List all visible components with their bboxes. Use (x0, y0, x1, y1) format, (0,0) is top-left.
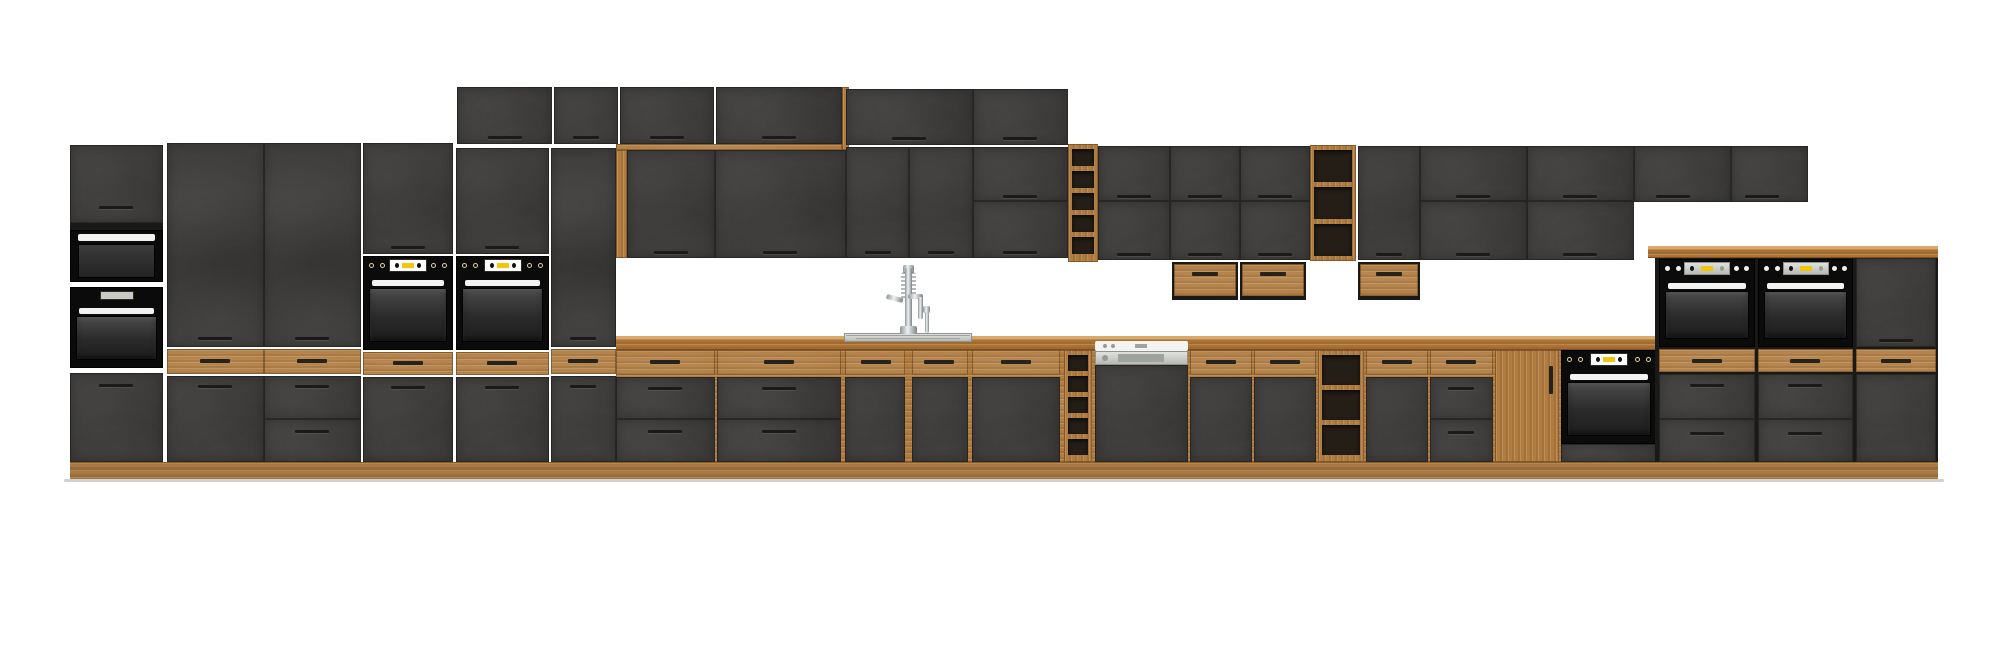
wall-b-top-door-1-handle (1117, 195, 1151, 198)
tall3-drawer-1-handle (295, 385, 329, 388)
tower-end-base-door (1856, 374, 1936, 462)
base2-drawer-1-handle (762, 387, 796, 390)
tower2-drawer-2 (1758, 419, 1853, 462)
tall5-oven-handle-bar (465, 280, 540, 286)
wall-sink-door-1 (627, 150, 715, 258)
tall6-door-handle (570, 337, 596, 340)
wall-open-shelf-1-slot-3 (1072, 193, 1094, 210)
tower1-oak-drawer-handle (1692, 359, 1722, 363)
tower-oven-2-knob-l1 (1764, 266, 1769, 271)
wall-open-shelf-2-slot-1 (1314, 150, 1352, 182)
tall5-oven-knob-r1 (527, 263, 532, 268)
tall1-bottom-door-handle (99, 384, 133, 387)
tall3-drawer-1 (264, 376, 361, 419)
tall5-oven-display-dot-2 (512, 263, 516, 268)
sink-bowl-line (856, 338, 960, 339)
tall2-base-door (167, 376, 264, 462)
wall-c-bottom-door-2-handle (1563, 253, 1597, 256)
wall-sink-door-2-handle (763, 251, 797, 254)
tall5-oven-knob-r2 (538, 263, 543, 268)
tower-oven-1-knob-l2 (1676, 266, 1681, 271)
wall-a-door-2-handle (928, 251, 954, 254)
tower1-drawer-1 (1659, 374, 1755, 419)
tall5-oven-knob-l2 (473, 263, 478, 268)
tower-oven-2-knob-l2 (1775, 266, 1780, 271)
dishwasher-button (1102, 355, 1108, 361)
tall3-drawer-2 (264, 419, 361, 462)
tower-oven-2-display-timer (1800, 266, 1812, 271)
tall4-oven-display-dot-1 (395, 263, 399, 268)
tall1-top-door (70, 145, 163, 223)
wall-a-door-3 (973, 147, 1068, 201)
base-wine-rack-slot-5 (1068, 439, 1088, 455)
tall5-oak-drawer-handle (487, 361, 517, 365)
base9-oak-drawer-handle (1382, 360, 1412, 364)
base-wine-rack-slot-1 (1068, 355, 1088, 371)
faucet-dispenser-stem (925, 312, 929, 333)
tall5-base-door-handle (485, 386, 519, 389)
tower-oven-1-glass (1665, 291, 1749, 339)
sink-base-door-1 (845, 377, 905, 462)
base-open-shelf-slot-3 (1322, 425, 1360, 455)
hanging-drawer-box-3-front (1360, 264, 1418, 296)
base1-drawer-2 (616, 419, 715, 462)
base7-door (1190, 377, 1252, 462)
tower1-drawer-2 (1659, 419, 1755, 462)
wall-b-bottom-door-2-handle (1188, 253, 1222, 256)
wall-c-top-door-2-handle (1563, 195, 1597, 198)
wall-b-bottom-door-3 (1240, 201, 1310, 260)
tower-oven-1-display-timer (1701, 266, 1713, 271)
tall6-base-door-handle (570, 385, 596, 388)
tall4-top-door (363, 143, 453, 254)
wall-d-door-1 (1634, 146, 1731, 202)
tower-end-top-door (1856, 258, 1936, 347)
wall-a-door-2 (909, 147, 973, 258)
oak-pantry-door-handle (1549, 366, 1553, 394)
tall6-base-door (551, 376, 616, 462)
tall1-oven-handle-bar (79, 308, 154, 314)
base1-drawer-1-handle (648, 387, 682, 390)
base-built-under-oven-glass (1567, 382, 1651, 436)
hanging-drawer-box-1-handle (1192, 272, 1218, 276)
tall5-oven-knob-l1 (462, 263, 467, 268)
tower2-drawer-1-handle (1788, 384, 1822, 387)
wall-open-shelf-2-slot-3 (1314, 224, 1352, 256)
tall4-oven-glass (369, 288, 447, 342)
wall-c-door-handle (1376, 253, 1402, 256)
tall2-base-door-handle (198, 385, 232, 388)
base-built-under-oven-knob-l1 (1567, 357, 1572, 362)
tall2-door-handle (198, 337, 232, 340)
sink-base-door-2 (912, 377, 968, 462)
base1-drawer-2-handle (648, 430, 682, 433)
tall1-frame-strip (70, 223, 163, 230)
dishwasher-top-mark-2 (1111, 344, 1115, 348)
wall-b-top-door-3-handle (1258, 195, 1292, 198)
tower-end-top-door-handle (1879, 339, 1913, 342)
wall-b-top-door-1 (1098, 146, 1170, 201)
wall-b-bottom-door-1 (1098, 201, 1170, 260)
wall-b-top-door-2 (1170, 146, 1240, 201)
hanging-drawer-box-2-front (1242, 264, 1304, 296)
wall-high-door-3-handle (650, 136, 684, 139)
base7-oak-drawer-handle (1206, 360, 1236, 364)
sink-base-door-3 (972, 377, 1060, 462)
tall1-microwave-glass (78, 244, 155, 278)
tower-oven-1-knob-r2 (1734, 266, 1739, 271)
wall-a-door-1 (846, 147, 909, 258)
hanging-drawer-box-1-front (1174, 264, 1236, 296)
hanging-drawer-box-2-handle (1260, 272, 1286, 276)
tall2-door (167, 143, 264, 347)
tall3-drawer-2-handle (295, 430, 329, 433)
base2-oak-drawer-handle (764, 360, 794, 364)
base8-door (1254, 377, 1316, 462)
wall-b-top-door-3 (1240, 146, 1310, 201)
tall3-door-handle (295, 337, 329, 340)
wall-a-door-4 (973, 201, 1068, 258)
base9-door (1366, 377, 1428, 462)
tall5-oven-display-dot-1 (490, 263, 494, 268)
wall-open-shelf-2-slot-2 (1314, 187, 1352, 219)
tall1-microwave-bar (78, 234, 155, 241)
base-oven-lower-panel (1561, 444, 1657, 462)
base-built-under-oven-handle-bar (1570, 374, 1648, 380)
base-built-under-oven-display-dot-2 (1618, 357, 1622, 362)
base-built-under-oven-knob-r1 (1635, 357, 1640, 362)
tower-oven-2-glass (1764, 291, 1847, 339)
wall-open-shelf-1-slot-4 (1072, 215, 1094, 232)
sink-base-oak-drawer-1-handle (861, 360, 891, 364)
wall-b-top-door-2-handle (1188, 195, 1222, 198)
tall6-door (551, 148, 616, 347)
wall-d-door-1-handle (1656, 195, 1690, 198)
wall-c-top-door-2 (1527, 146, 1634, 201)
base10-drawer-2-handle (1448, 431, 1474, 434)
hanging-drawer-box-3-handle (1376, 272, 1402, 276)
tall4-base-door (363, 377, 453, 462)
wall-sink-door-2 (715, 150, 846, 258)
tall6-oak-drawer-handle (568, 359, 598, 363)
base10-drawer-1-handle (1448, 387, 1474, 390)
base-open-shelf-slot-1 (1322, 355, 1360, 385)
base1-oak-drawer-handle (650, 360, 680, 364)
base10-drawer-2 (1430, 419, 1493, 462)
tower-worktop-cap (1648, 246, 1938, 258)
wall-c-bottom-door-1 (1420, 201, 1527, 260)
tower-oven-2-display-dot-1 (1789, 266, 1793, 271)
tall4-oven-display-timer (402, 263, 414, 268)
tower-oven-1-knob-r3 (1744, 266, 1749, 271)
tower1-drawer-1-handle (1690, 384, 1724, 387)
wall-b-bottom-door-2 (1170, 201, 1240, 260)
tall4-oven-display-dot-2 (417, 263, 421, 268)
tall4-oak-drawer-handle (393, 361, 423, 365)
base-wine-rack-slot-3 (1068, 397, 1088, 413)
base-built-under-oven-display-dot-1 (1596, 357, 1600, 362)
tower-oven-1-display-dot-2 (1720, 266, 1724, 271)
base-built-under-oven-display-timer (1603, 357, 1615, 362)
tower-oven-2-handle-bar (1767, 283, 1844, 289)
tall2-oak-drawer-handle (200, 359, 230, 363)
tower-oven-2-knob-r2 (1832, 266, 1837, 271)
base8-oak-drawer-handle (1270, 360, 1300, 364)
wall-a-door-1-handle (865, 251, 891, 254)
tower2-drawer-2-handle (1788, 432, 1822, 435)
tower2-drawer-1 (1758, 374, 1853, 419)
tall4-base-door-handle (391, 386, 425, 389)
tower-oven-2-display-dot-2 (1819, 266, 1823, 271)
base-open-shelf-slot-2 (1322, 390, 1360, 420)
dishwasher-top-mark-1 (1103, 344, 1107, 348)
tall4-top-door-handle (391, 246, 425, 249)
wall-c-top-door-1 (1420, 146, 1527, 201)
tower-oven-1-knob-l1 (1665, 266, 1670, 271)
tall4-oven-knob-l1 (369, 263, 374, 268)
floor-shadow (64, 479, 1944, 482)
sink-edge (846, 335, 970, 336)
wall-d-door-2 (1731, 146, 1808, 202)
dishwasher-top-mark-3 (1135, 344, 1147, 348)
tall4-oven-knob-l2 (380, 263, 385, 268)
tall3-oak-drawer-handle (297, 359, 327, 363)
wall-c-bottom-door-1-handle (1456, 253, 1490, 256)
tower-oven-1-handle-bar (1668, 283, 1746, 289)
wall-a-top-door-2-handle (1003, 137, 1037, 140)
tower1-drawer-2-handle (1690, 432, 1724, 435)
wall-high-door-2-handle (573, 136, 599, 139)
sink-base-oak-drawer-2-handle (924, 360, 954, 364)
tall4-oven-knob-r2 (442, 263, 447, 268)
wall-c-top-door-1-handle (1456, 195, 1490, 198)
wall-high-door-4-handle (762, 136, 796, 139)
tower-oven-1-display-dot-1 (1690, 266, 1694, 271)
sink-base-oak-drawer-3-handle (1001, 360, 1031, 364)
base-wine-rack-slot-4 (1068, 418, 1088, 434)
dishwasher-panel (1095, 365, 1188, 462)
wall-high-door-1-handle (488, 136, 522, 139)
tall1-oven-display (100, 291, 134, 300)
tower2-oak-drawer-handle (1790, 359, 1820, 363)
wall-c-door (1358, 146, 1420, 260)
tall5-base-door (456, 377, 549, 462)
plinth (70, 462, 1938, 479)
dishwasher-handle-recess (1118, 354, 1164, 362)
tall5-oven-display-timer (497, 263, 509, 268)
base-wine-rack-slot-2 (1068, 376, 1088, 392)
wall-a-door-3-handle (1003, 195, 1037, 198)
base-built-under-oven-knob-r2 (1646, 357, 1651, 362)
base10-drawer-1 (1430, 377, 1493, 419)
niche-oak-trim-side (616, 150, 627, 258)
wall-open-shelf-1-slot-2 (1072, 171, 1094, 188)
tall1-top-door-handle (99, 206, 133, 209)
base2-drawer-2-handle (762, 430, 796, 433)
wall-c-bottom-door-2 (1527, 201, 1634, 260)
tall5-top-door (456, 148, 549, 254)
base10-oak-drawer-handle (1446, 360, 1476, 364)
wall-d-door-2-handle (1745, 195, 1779, 198)
wall-b-bottom-door-3-handle (1258, 253, 1292, 256)
tall4-oven-handle-bar (372, 280, 444, 286)
base1-drawer-1 (616, 377, 715, 419)
kitchen-render (0, 0, 2000, 662)
wall-b-bottom-door-1-handle (1117, 253, 1151, 256)
tower-oven-2-knob-r3 (1842, 266, 1847, 271)
wall-sink-door-1-handle (654, 251, 688, 254)
tower-end-oak-drawer-handle (1881, 359, 1911, 363)
faucet-base (900, 326, 917, 334)
tall1-oven-glass (76, 316, 157, 360)
wall-a-top-door-1-handle (892, 137, 926, 140)
tall4-oven-knob-r1 (431, 263, 436, 268)
wall-open-shelf-1-slot-5 (1072, 237, 1094, 254)
wall-a-door-4-handle (1003, 251, 1037, 254)
base2-drawer-1 (717, 377, 841, 419)
wall-open-shelf-1-slot-1 (1072, 149, 1094, 166)
tall5-oven-glass (462, 288, 543, 342)
tall5-top-door-handle (485, 246, 519, 249)
base2-drawer-2 (717, 419, 841, 462)
base-built-under-oven-knob-l2 (1578, 357, 1583, 362)
tall3-door (264, 143, 361, 347)
